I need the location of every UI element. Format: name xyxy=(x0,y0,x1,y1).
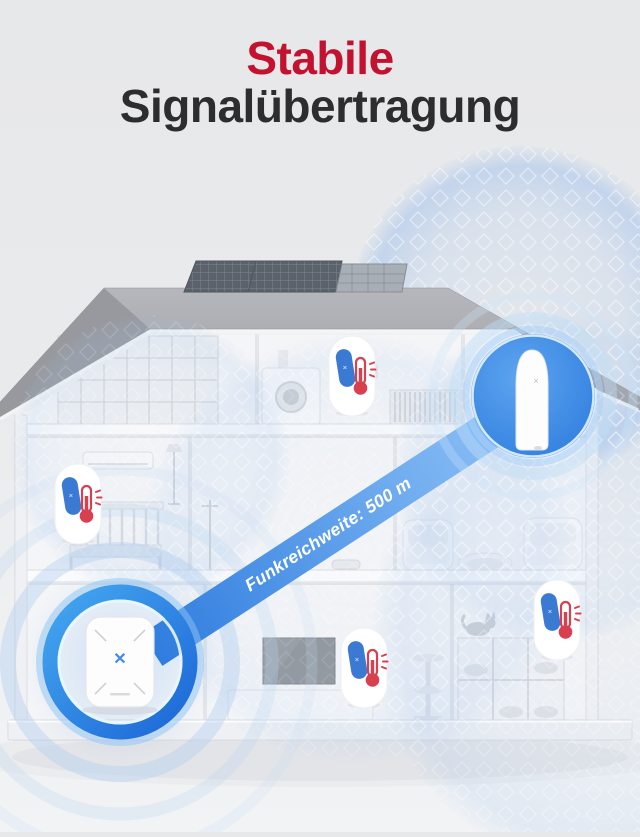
badge-sensor-logo: × xyxy=(548,607,552,616)
badge-sensor-logo: × xyxy=(355,655,359,664)
entry-sensor-logo: × xyxy=(533,376,538,386)
solar-panel-icon xyxy=(184,261,407,292)
title-line-accent: Stabile xyxy=(0,34,640,82)
badge-sensor-logo: × xyxy=(69,491,73,500)
title-line-main: Signalübertragung xyxy=(0,82,640,130)
temperature-sensor-badge: × xyxy=(341,628,388,708)
temperature-sensor-badge: × xyxy=(55,464,102,544)
hub-logo: ✕ xyxy=(113,651,126,668)
page-title: Stabile Signalübertragung xyxy=(0,34,640,131)
hub-brand-mark xyxy=(110,693,130,696)
badge-sensor-logo: × xyxy=(343,363,347,372)
base-station-icon: ✕ xyxy=(82,617,158,715)
capsule-sensor-device: × xyxy=(433,296,633,496)
capsule-sensor-icon: × xyxy=(516,350,548,450)
temperature-sensor-badge: × xyxy=(329,336,376,416)
temperature-sensor-badge: × xyxy=(534,580,581,660)
